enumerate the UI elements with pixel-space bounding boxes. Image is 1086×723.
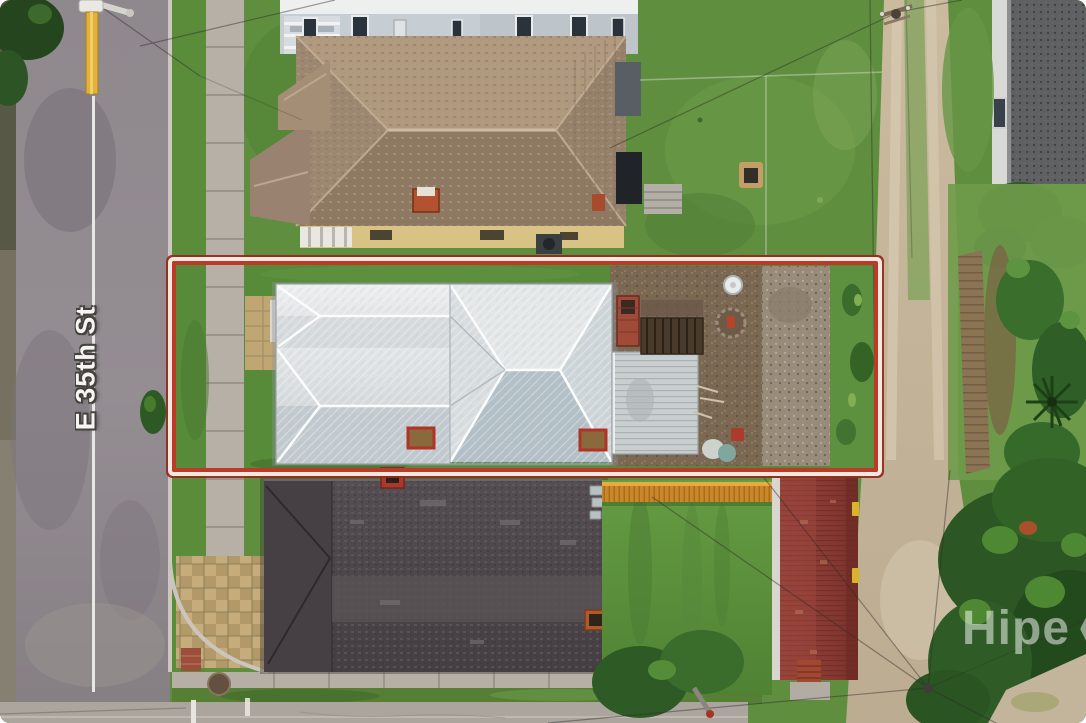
watermark-text: Hipe bbox=[962, 605, 1070, 653]
aerial-scene bbox=[0, 0, 1086, 723]
utility-pole bbox=[923, 683, 933, 693]
shrub bbox=[140, 390, 166, 434]
porch-roof bbox=[615, 62, 641, 116]
right-garden bbox=[948, 184, 1086, 482]
red-leaf-bush bbox=[1019, 521, 1037, 535]
watermark: Hipe bbox=[962, 592, 1086, 666]
yard-chair bbox=[731, 428, 744, 441]
subject-lot bbox=[176, 264, 878, 472]
curb-marking bbox=[245, 698, 250, 716]
south-neighbor-house bbox=[260, 468, 608, 674]
roof-vent bbox=[408, 428, 434, 448]
window bbox=[993, 98, 1006, 128]
brick-patch bbox=[181, 648, 201, 671]
manhole-cover bbox=[208, 673, 230, 695]
hexagon-chevron-icon bbox=[1078, 592, 1086, 666]
roof-vent bbox=[580, 430, 606, 450]
chimney bbox=[592, 194, 605, 211]
subject-house bbox=[272, 282, 618, 466]
street-name-label: E 35th St bbox=[71, 306, 102, 431]
aerial-photo: E 35th St Hipe bbox=[0, 0, 1086, 723]
curb-marking bbox=[191, 700, 196, 723]
